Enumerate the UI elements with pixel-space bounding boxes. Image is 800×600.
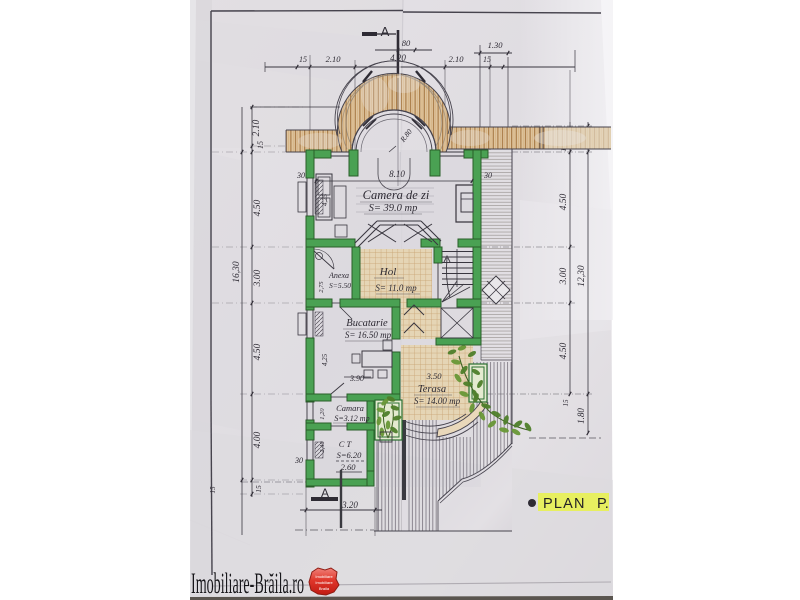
svg-text:Imobiliare-Brăila.ro: Imobiliare-Brăila.ro xyxy=(191,567,304,600)
svg-text:Camera de zi: Camera de zi xyxy=(363,188,430,202)
svg-text:1.30: 1.30 xyxy=(488,40,504,50)
svg-text:4,25: 4,25 xyxy=(321,353,329,366)
svg-text:S= 14.00 mp: S= 14.00 mp xyxy=(414,396,461,406)
svg-text:4.50: 4.50 xyxy=(559,342,569,359)
svg-text:Braila: Braila xyxy=(319,586,330,591)
svg-text:80: 80 xyxy=(402,38,411,48)
svg-text:A: A xyxy=(381,24,390,39)
svg-text:30: 30 xyxy=(296,171,305,180)
svg-text:4.50: 4.50 xyxy=(559,193,569,210)
svg-text:2.10: 2.10 xyxy=(252,119,262,136)
svg-text:Camara: Camara xyxy=(336,403,364,413)
svg-text:3.00: 3.00 xyxy=(559,267,569,285)
svg-text:P.: P. xyxy=(597,496,609,512)
svg-text:4.50: 4.50 xyxy=(253,199,263,216)
svg-text:2,75: 2,75 xyxy=(318,281,325,293)
svg-text:30: 30 xyxy=(294,456,303,465)
svg-text:S= 11.0 mp: S= 11.0 mp xyxy=(375,283,417,293)
svg-text:S= 16.50 mp: S= 16.50 mp xyxy=(345,330,392,340)
svg-text:1.80: 1.80 xyxy=(576,408,586,424)
svg-text:15: 15 xyxy=(209,486,217,494)
svg-text:4,25: 4,25 xyxy=(321,193,329,206)
svg-text:15: 15 xyxy=(256,141,265,149)
svg-text:15: 15 xyxy=(299,55,307,64)
svg-text:2.60: 2.60 xyxy=(341,462,357,472)
svg-text:C T: C T xyxy=(339,439,353,449)
svg-text:S= 39.0 mp: S= 39.0 mp xyxy=(369,203,418,214)
svg-text:Terasa: Terasa xyxy=(418,384,446,395)
svg-text:30: 30 xyxy=(483,171,492,180)
svg-text:S=5.50: S=5.50 xyxy=(329,281,351,290)
svg-text:S=6.20: S=6.20 xyxy=(337,450,363,460)
svg-text:3.00: 3.00 xyxy=(253,269,263,287)
svg-text:3.50: 3.50 xyxy=(426,371,443,381)
svg-text:1,20: 1,20 xyxy=(319,408,326,420)
svg-text:PLAN: PLAN xyxy=(543,496,586,512)
svg-text:4.00: 4.00 xyxy=(253,431,263,448)
svg-text:Bucatarie: Bucatarie xyxy=(346,318,388,329)
svg-text:3.20: 3.20 xyxy=(341,500,358,510)
svg-text:15: 15 xyxy=(254,485,263,493)
svg-text:2,40: 2,40 xyxy=(319,441,326,453)
svg-text:2.10: 2.10 xyxy=(449,54,465,64)
svg-text:S=3.12 mp: S=3.12 mp xyxy=(334,414,369,423)
svg-text:16,30: 16,30 xyxy=(232,261,242,283)
svg-text:Imobiliare: Imobiliare xyxy=(315,574,333,579)
svg-text:Hol: Hol xyxy=(379,266,397,278)
svg-text:12,30: 12,30 xyxy=(577,265,587,287)
svg-text:15: 15 xyxy=(562,399,570,407)
svg-text:4.50: 4.50 xyxy=(253,343,263,360)
svg-text:Imobiliare: Imobiliare xyxy=(315,580,333,585)
svg-text:2.10: 2.10 xyxy=(326,54,342,64)
svg-text:Anexa: Anexa xyxy=(328,271,349,280)
svg-text:3.90: 3.90 xyxy=(349,374,364,383)
svg-text:8.10: 8.10 xyxy=(389,169,405,179)
